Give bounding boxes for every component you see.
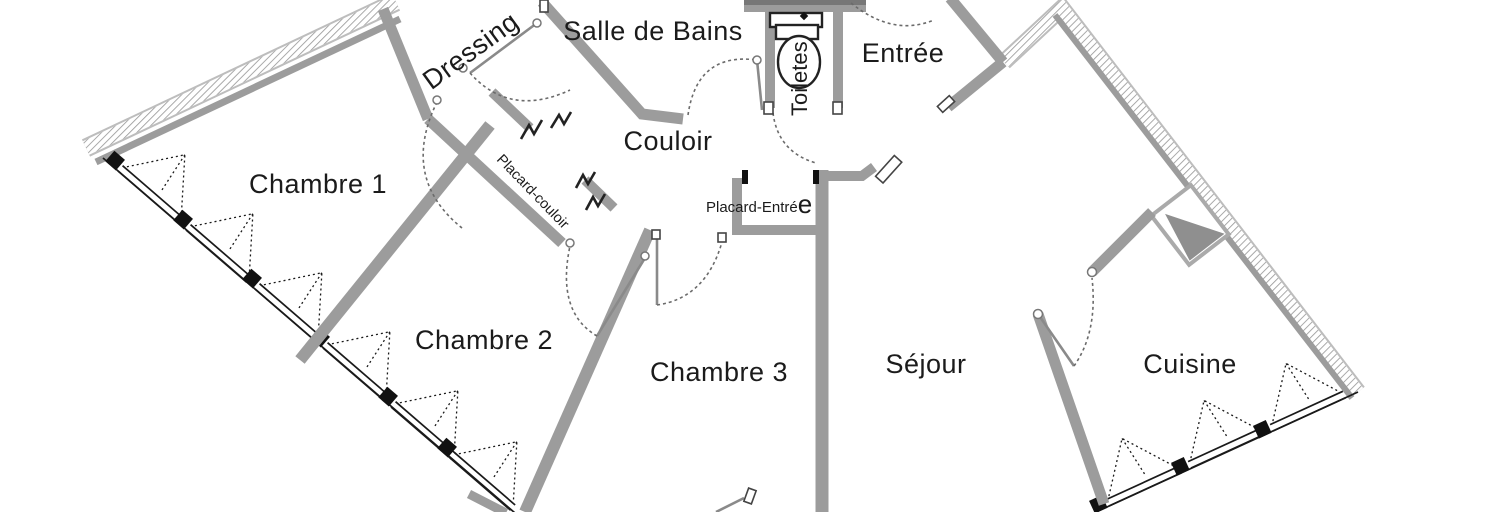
- room-label-dressing: Dressing: [417, 6, 524, 95]
- window-symbol: [1153, 384, 1264, 476]
- placard-entree-jambs: [742, 170, 819, 184]
- floor-plan-page: Chambre 1 Chambre 2 Chambre 3 Séjour Cui…: [0, 0, 1504, 512]
- window-symbol: [378, 354, 488, 460]
- wall-entree-right: [950, 0, 1003, 62]
- door-entree-sejour: [876, 96, 955, 183]
- wall-entree-return: [948, 62, 1003, 107]
- room-label-couloir: Couloir: [623, 126, 712, 156]
- wall-toilettes-top-edge: [744, 0, 866, 5]
- room-label-salle-de-bains: Salle de Bains: [563, 16, 743, 46]
- room-label-entree: Entrée: [862, 38, 945, 68]
- room-label-toilettes: Toiletes: [787, 41, 812, 116]
- room-label-chambre-2: Chambre 2: [415, 325, 553, 355]
- wall-chambre2-chambre3: [525, 230, 650, 512]
- closet-label-placard-entree: Placard-Entrée: [706, 189, 812, 219]
- wall-sejour-cuisine: [1038, 314, 1104, 504]
- wall-cuisine-upper: [1092, 212, 1152, 272]
- wall-stub-bottom: [469, 494, 506, 512]
- room-label-chambre-3: Chambre 3: [650, 357, 788, 387]
- room-label-chambre-1: Chambre 1: [249, 169, 387, 199]
- wall-dressing-left: [383, 9, 428, 119]
- door-salle-de-bains: [688, 56, 762, 115]
- floor-plan-canvas: Chambre 1 Chambre 2 Chambre 3 Séjour Cui…: [0, 0, 1504, 512]
- wall-placard-couloir-ne1: [492, 92, 530, 128]
- exterior-wall-top-left: [86, 2, 400, 162]
- door-chambre3: [652, 230, 726, 305]
- window-symbol: [242, 236, 352, 342]
- wall-sejour-entree: [824, 167, 874, 176]
- room-label-sejour: Séjour: [885, 349, 966, 379]
- room-label-cuisine: Cuisine: [1143, 349, 1237, 379]
- window-symbol: [310, 295, 420, 401]
- door-bottom-center: [716, 488, 756, 512]
